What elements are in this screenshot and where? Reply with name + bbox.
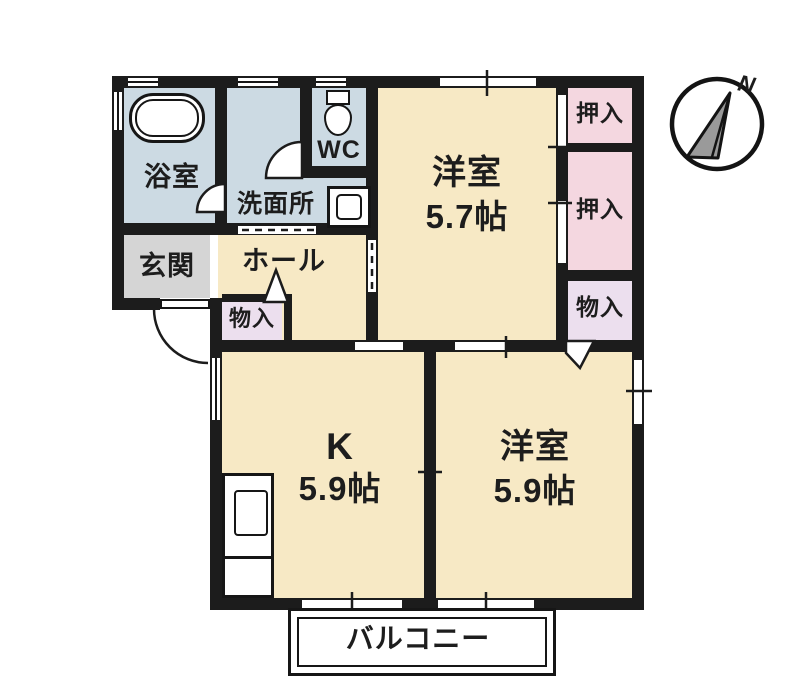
kitchen-name-label: K bbox=[300, 428, 380, 467]
closet-right-label: 物入 bbox=[570, 295, 630, 319]
entrance-door-arc bbox=[154, 309, 208, 363]
room1-size-label: 5.7帖 bbox=[402, 200, 532, 235]
entrance-label: 玄関 bbox=[126, 252, 208, 280]
kitchen-size-label: 5.9帖 bbox=[279, 472, 401, 507]
entrance-door-leaf bbox=[160, 299, 210, 309]
wall-segment bbox=[556, 143, 644, 152]
window bbox=[238, 78, 278, 86]
door-opening bbox=[355, 342, 403, 350]
wc-label: WC bbox=[314, 137, 364, 163]
wall-segment bbox=[300, 88, 312, 178]
balcony-door bbox=[438, 600, 534, 608]
kitchen-counter-icon bbox=[222, 473, 274, 598]
oshiire1-label: 押入 bbox=[570, 101, 630, 125]
compass-north-label: N bbox=[730, 69, 764, 99]
toilet-icon bbox=[320, 89, 356, 139]
kitchen-sink-icon bbox=[234, 490, 268, 536]
oshiire2-label: 押入 bbox=[570, 197, 630, 221]
hall-label: ホール bbox=[232, 247, 336, 275]
wall-segment bbox=[112, 298, 160, 310]
window bbox=[634, 360, 642, 424]
door-opening bbox=[368, 240, 376, 292]
window bbox=[128, 78, 158, 86]
wall-segment bbox=[112, 76, 644, 88]
washroom-label: 洗面所 bbox=[222, 191, 330, 217]
wall-segment bbox=[210, 340, 644, 352]
window bbox=[114, 92, 122, 130]
wall-segment bbox=[424, 352, 436, 598]
wall-segment bbox=[222, 294, 290, 302]
hall-closet-label: 物入 bbox=[222, 307, 282, 330]
window bbox=[440, 78, 536, 86]
balcony-door bbox=[302, 600, 402, 608]
room2-name-label: 洋室 bbox=[475, 430, 595, 466]
window bbox=[212, 358, 220, 420]
door-opening bbox=[455, 342, 507, 350]
room2-size-label: 5.9帖 bbox=[470, 474, 600, 509]
door-opening bbox=[558, 95, 566, 147]
balcony-label: バルコニー bbox=[318, 624, 518, 653]
wall-segment bbox=[556, 270, 644, 281]
door-opening bbox=[558, 201, 566, 263]
washing-machine-icon bbox=[327, 186, 371, 228]
bathtub-icon bbox=[129, 93, 205, 143]
wall-segment bbox=[284, 294, 292, 340]
room1-name-label: 洋室 bbox=[407, 156, 527, 192]
bath-label: 浴室 bbox=[126, 163, 218, 191]
door-opening bbox=[238, 226, 316, 234]
floorplan-canvas: N 浴室 洗面所 WC 玄関 ホール 物入 洋室 5.7帖 押入 押入 物入 K… bbox=[0, 0, 800, 688]
window bbox=[316, 78, 346, 86]
